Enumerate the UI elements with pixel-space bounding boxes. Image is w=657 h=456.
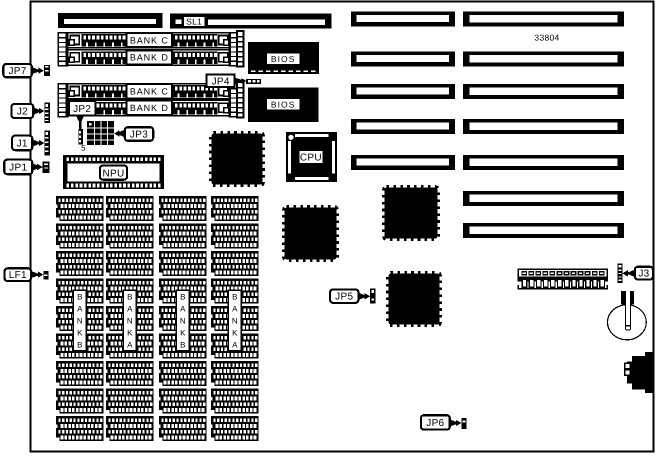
svg-text:B: B (77, 293, 82, 302)
svg-text:JP2: JP2 (73, 104, 91, 115)
svg-text:JP4: JP4 (212, 77, 230, 88)
svg-text:N: N (232, 317, 238, 326)
svg-text:BANK D: BANK D (130, 103, 169, 113)
svg-text:CPU: CPU (300, 153, 322, 164)
svg-text:JP3: JP3 (130, 129, 148, 140)
svg-text:B: B (77, 341, 82, 350)
svg-text:B: B (127, 293, 132, 302)
svg-text:BIOS: BIOS (271, 99, 296, 109)
svg-text:A: A (77, 305, 83, 314)
svg-text:NPU: NPU (102, 169, 124, 180)
svg-text:BANK D: BANK D (130, 53, 169, 63)
svg-text:JP7: JP7 (8, 66, 26, 77)
svg-text:A: A (232, 305, 238, 314)
svg-text:N: N (180, 317, 186, 326)
svg-text:JP6: JP6 (426, 418, 444, 429)
svg-text:SL1: SL1 (186, 16, 202, 26)
svg-text:K: K (232, 329, 238, 338)
svg-text:K: K (77, 329, 83, 338)
svg-text:BIOS: BIOS (271, 54, 296, 64)
svg-text:5: 5 (81, 144, 86, 153)
svg-text:K: K (127, 329, 133, 338)
svg-text:B: B (180, 293, 185, 302)
svg-text:BANK C: BANK C (130, 86, 169, 96)
svg-text:J3: J3 (638, 269, 649, 280)
svg-text:JP1: JP1 (9, 162, 27, 173)
svg-text:A: A (127, 341, 133, 350)
svg-text:BANK C: BANK C (130, 35, 169, 45)
svg-text:A: A (232, 341, 238, 350)
svg-text:JP5: JP5 (335, 292, 353, 303)
svg-text:A: A (180, 305, 186, 314)
svg-text:J1: J1 (17, 138, 28, 149)
svg-text:A: A (127, 305, 133, 314)
svg-text:B: B (180, 341, 185, 350)
svg-text:N: N (77, 317, 83, 326)
svg-text:LF1: LF1 (9, 270, 27, 281)
svg-text:B: B (232, 293, 237, 302)
svg-text:33804: 33804 (534, 33, 559, 43)
svg-text:N: N (127, 317, 133, 326)
svg-text:K: K (180, 329, 186, 338)
svg-text:J2: J2 (17, 106, 28, 117)
